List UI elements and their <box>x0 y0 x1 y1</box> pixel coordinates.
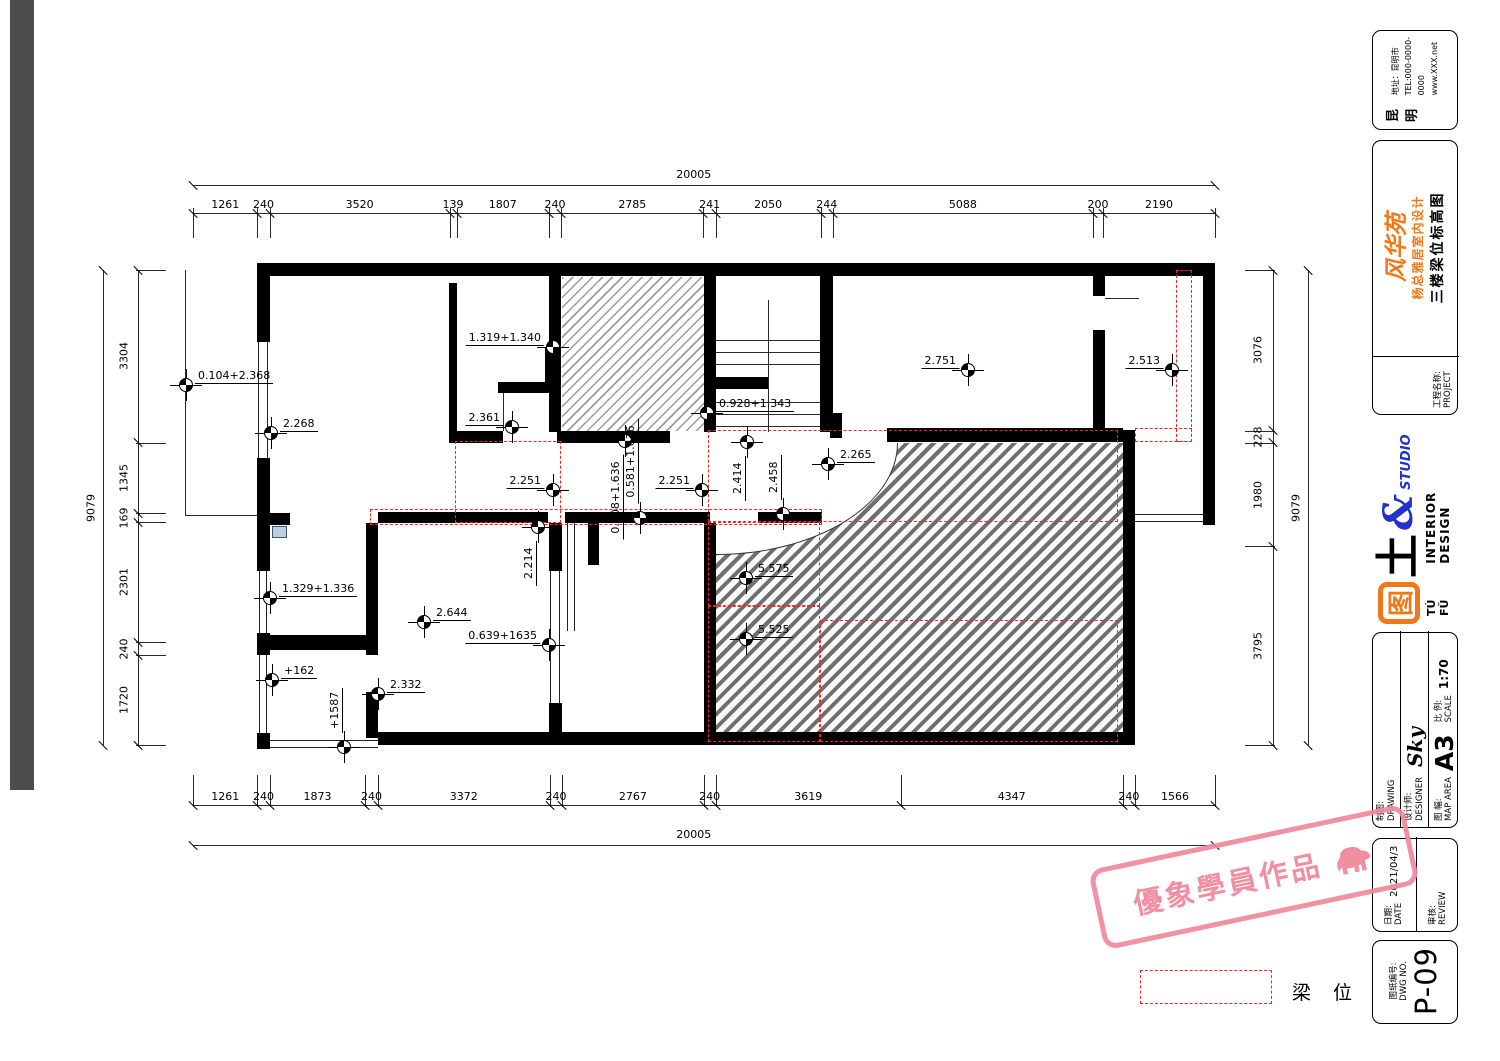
window <box>259 655 267 733</box>
beam-zone <box>1176 270 1192 442</box>
wall-segment <box>257 263 1215 276</box>
dim-value: 240 <box>1118 790 1139 803</box>
elevation-label: +162 <box>281 665 317 679</box>
elevation-label: 2.751 <box>922 355 960 369</box>
elevation-label: 1.329+1.336 <box>279 583 357 597</box>
elevation-label: 2.361 <box>466 412 504 426</box>
elephant-icon <box>1327 833 1378 879</box>
dim-ext <box>136 270 166 271</box>
scale-label-cn: 比 例: <box>1434 695 1444 722</box>
elevation-label: 2.332 <box>387 679 425 693</box>
dim-ext <box>193 775 194 807</box>
map-label-en: MAP AREA <box>1444 777 1454 821</box>
sheet-size-value: A3 <box>1430 734 1459 771</box>
project-label-cn: 工程名称: <box>1433 363 1443 408</box>
elevation-marker <box>179 378 193 392</box>
date-label-cn: 日期: <box>1384 903 1394 925</box>
elevation-marker <box>546 340 560 354</box>
studio-calligraphy-logo: 风华苑 <box>1385 213 1408 282</box>
elevation-marker <box>740 435 754 449</box>
wall-segment <box>1093 276 1105 296</box>
elevation-label: 0.708+1.636 <box>608 455 624 540</box>
tel-line: TEL:000-0000-0000 <box>1403 36 1429 95</box>
elevation-marker <box>263 591 277 605</box>
dim-value: 244 <box>816 198 837 211</box>
drawing-sheet: 0.104+2.3682.2681.319+1.3402.3610.928+1.… <box>0 0 1500 1061</box>
dim-value: 139 <box>443 198 464 211</box>
dim-value: 240 <box>545 198 566 211</box>
ampersand-glyph: & <box>1383 494 1415 530</box>
dim-line <box>138 270 139 745</box>
dim-value: 2785 <box>618 198 646 211</box>
dim-value: 20005 <box>676 828 711 841</box>
dim-value: 3076 <box>1252 336 1265 364</box>
detail-line <box>185 515 257 516</box>
dim-value: 1873 <box>304 790 332 803</box>
titleblock-contact-box: 昆明 地址：昆明市 TEL:000-0000-0000 www.XXX.net <box>1372 30 1458 130</box>
detail-line <box>716 352 820 353</box>
web-line: www.XXX.net <box>1429 36 1442 95</box>
dim-value: 9079 <box>1290 494 1303 522</box>
elevation-marker <box>371 687 385 701</box>
dim-value: 20005 <box>676 168 711 181</box>
detail-line <box>716 426 820 427</box>
window <box>567 523 575 631</box>
date-label-en: DATE <box>1394 903 1404 925</box>
dim-value: 240 <box>253 198 274 211</box>
dim-value: 240 <box>546 790 567 803</box>
project-subtitle: 杨总雅居室内设计 <box>1409 196 1426 300</box>
elevation-label: 2.644 <box>433 607 471 621</box>
dim-ext <box>136 513 166 514</box>
dim-value: 169 <box>118 507 131 528</box>
hatched-area-light <box>562 277 704 431</box>
dim-ext <box>1245 745 1275 746</box>
dim-line <box>1273 270 1274 745</box>
wall-segment <box>258 635 370 650</box>
beam-legend-label: 梁 位 <box>1292 978 1360 1005</box>
dwgno-label-en: DWG NO. <box>1399 961 1409 1001</box>
wall-segment <box>257 733 270 749</box>
elevation-marker <box>505 420 519 434</box>
elevation-label: 2.251 <box>656 475 694 489</box>
wall-segment <box>820 276 833 432</box>
dim-value: 241 <box>699 198 720 211</box>
dim-value: 9079 <box>85 494 98 522</box>
address-line: 地址：昆明市 <box>1390 36 1403 95</box>
elevation-marker <box>739 571 753 585</box>
elevation-marker <box>531 520 545 534</box>
review-label-en: REVIEW <box>1438 892 1448 925</box>
wall-segment <box>498 382 558 393</box>
elevation-marker <box>417 615 431 629</box>
elevation-marker <box>264 426 278 440</box>
elevation-label: 5.575 <box>755 563 793 577</box>
dim-value: 3304 <box>118 342 131 370</box>
wall-segment <box>588 523 599 565</box>
dim-value: 1720 <box>118 686 131 714</box>
detail-line <box>503 390 504 431</box>
dim-value: 5088 <box>949 198 977 211</box>
wall-segment <box>1093 330 1105 432</box>
beam-zone <box>820 620 1118 742</box>
elevation-marker <box>546 483 560 497</box>
dim-ext <box>901 775 902 807</box>
tu-square-logo-icon: 图 <box>1378 582 1420 624</box>
window <box>550 571 560 703</box>
designer-label-en: DESIGNER <box>1415 777 1425 821</box>
wall-segment <box>549 523 562 571</box>
dim-total-line <box>103 270 104 745</box>
door-detail <box>272 526 287 538</box>
dim-value: 1261 <box>211 198 239 211</box>
dim-value: 2050 <box>754 198 782 211</box>
dim-total-line <box>193 185 1215 186</box>
wall-segment <box>716 377 768 389</box>
region-label: 昆明 <box>1382 102 1420 122</box>
window <box>1135 514 1203 522</box>
elevation-marker <box>739 632 753 646</box>
student-work-stamp: 優象學員作品 <box>1088 803 1420 950</box>
dim-value: 3520 <box>346 198 374 211</box>
map-label-cn: 图 幅: <box>1434 777 1444 821</box>
window-edge-bar <box>10 0 34 790</box>
dim-value: 3372 <box>450 790 478 803</box>
drawing-title: 三楼梁位标高图 <box>1427 192 1447 304</box>
titleblock-info-box: 制图: DRAWING 设计师: DESIGNER Sky 图 幅: MAP A… <box>1372 632 1458 828</box>
elevation-marker <box>265 673 279 687</box>
elevation-label: 2.265 <box>837 449 875 463</box>
wall-segment <box>549 703 562 745</box>
dim-value: 228 <box>1252 426 1265 447</box>
wall-segment <box>257 458 270 515</box>
dim-value: 2190 <box>1145 198 1173 211</box>
pinyin-label: TÚ FǓ <box>1425 580 1451 616</box>
detail-line <box>1105 298 1139 299</box>
elevation-label: 5.525 <box>755 624 793 638</box>
elevation-marker <box>961 363 975 377</box>
elevation-marker <box>337 740 351 754</box>
scale-value: 1:70 <box>1437 659 1451 689</box>
window <box>258 340 268 460</box>
studio-word: STUDIO <box>1399 434 1414 489</box>
elevation-label: 0.639+1635 <box>465 630 540 644</box>
dim-total-line <box>193 845 1215 846</box>
elevation-marker <box>633 511 647 525</box>
dim-value: 240 <box>253 790 274 803</box>
elevation-label: 2.268 <box>280 418 318 432</box>
interior-design-label: INTERIOR DESIGN <box>1424 431 1452 564</box>
tu-glyph: 图 <box>1381 590 1418 616</box>
elevation-label: 2.513 <box>1126 355 1164 369</box>
wall-segment <box>257 276 270 342</box>
dim-value: 3795 <box>1252 632 1265 660</box>
dim-total-line <box>1308 270 1309 745</box>
dim-value: 1566 <box>1161 790 1189 803</box>
elevation-label: 1.319+1.340 <box>466 332 544 346</box>
elevation-marker <box>821 457 835 471</box>
detail-line <box>716 364 820 365</box>
elevation-label: 2.214 <box>521 541 537 586</box>
elevation-marker <box>1165 363 1179 377</box>
wall-segment <box>1203 263 1215 525</box>
wall-segment <box>257 523 270 571</box>
dim-value: 1980 <box>1252 481 1265 509</box>
dim-ext <box>136 745 166 746</box>
detail-line <box>716 340 820 341</box>
elevation-label: 2.251 <box>507 475 545 489</box>
dim-value: 200 <box>1088 198 1109 211</box>
wall-segment <box>449 283 457 431</box>
dim-ext <box>136 655 166 656</box>
elevation-marker <box>776 507 790 521</box>
beam-legend-swatch <box>1140 970 1272 1004</box>
scale-label-en: SCALE <box>1444 695 1454 722</box>
dim-value: 240 <box>699 790 720 803</box>
dim-value: 4347 <box>998 790 1026 803</box>
beam-zone <box>1135 428 1192 442</box>
elevation-label: 2.458 <box>766 455 782 500</box>
dim-value: 3619 <box>794 790 822 803</box>
elevation-label: 2.414 <box>730 456 746 501</box>
studio-logo-block: 图 土 & STUDIO TÚ FǓ INTERIOR DESIGN <box>1372 425 1458 630</box>
elevation-label: 0.581+1.636 <box>623 419 639 504</box>
elevation-label: 0.928+1.343 <box>716 398 794 412</box>
designer-value: Sky <box>1403 727 1427 767</box>
detail-line <box>768 300 769 432</box>
dim-value: 1345 <box>118 464 131 492</box>
dim-ext <box>1245 270 1275 271</box>
dim-value: 2301 <box>118 568 131 596</box>
detail-line <box>716 414 820 415</box>
project-label-en: PROJECT <box>1443 363 1453 408</box>
elevation-marker <box>700 406 714 420</box>
titleblock-project-box: 工程名称: PROJECT 风华苑 杨总雅居室内设计 三楼梁位标高图 <box>1372 140 1458 415</box>
designer-label-cn: 设计师: <box>1404 777 1414 821</box>
dim-value: 1261 <box>211 790 239 803</box>
review-label-cn: 审核: <box>1428 892 1438 925</box>
dim-ext <box>1245 546 1275 547</box>
elevation-label: +1587 <box>327 688 343 733</box>
dwgno-label-cn: 图纸编号: <box>1389 961 1399 1001</box>
titleblock-dwgno-box: 图纸编号: DWG NO. P-09 <box>1372 940 1458 1024</box>
dim-ext <box>1215 775 1216 807</box>
dim-value: 240 <box>118 638 131 659</box>
dwgno-value: P-09 <box>1409 947 1443 1015</box>
elevation-marker <box>695 483 709 497</box>
dim-ext <box>136 522 166 523</box>
elevation-marker <box>542 638 556 652</box>
tu2-glyph: 土 <box>1379 534 1419 578</box>
dim-value: 2767 <box>619 790 647 803</box>
stamp-text: 優象學員作品 <box>1129 842 1326 923</box>
wall-segment <box>1123 430 1135 744</box>
dim-value: 1807 <box>489 198 517 211</box>
elevation-label: 0.104+2.368 <box>195 370 273 384</box>
dim-value: 240 <box>361 790 382 803</box>
